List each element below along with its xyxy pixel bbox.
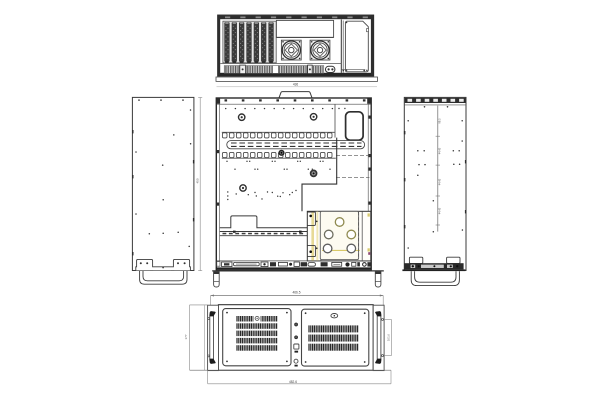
svg-text:44.45: 44.45 [438, 147, 442, 154]
svg-text:98.5: 98.5 [438, 118, 442, 124]
svg-text:466.5: 466.5 [293, 291, 301, 295]
svg-text:177: 177 [184, 334, 188, 339]
svg-text:44.45: 44.45 [438, 207, 442, 214]
svg-text:44.45: 44.45 [438, 178, 442, 185]
svg-text:450: 450 [196, 178, 200, 183]
svg-text:101.6: 101.6 [387, 334, 391, 341]
svg-text:436: 436 [293, 83, 299, 87]
svg-text:482.6: 482.6 [289, 380, 297, 384]
